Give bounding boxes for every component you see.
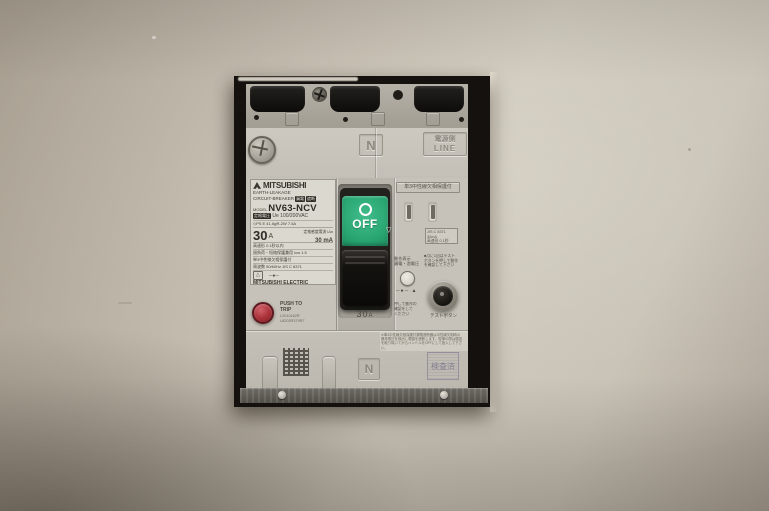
triangle-symbol-icon: △ (253, 271, 263, 280)
push-to-trip-label: PUSH TO TRIP (280, 302, 302, 313)
panel-spec-box: JIS C 8371 30mA 高速形 0.1秒 AC100/200V (425, 228, 458, 244)
seam (336, 178, 337, 330)
voltage-chip: 定格電圧 (253, 213, 271, 219)
indicator-sub: 漏電・過電圧 (394, 261, 424, 266)
terminal-tag (371, 112, 385, 126)
terminal-dot (393, 90, 403, 100)
off-circle-icon (359, 203, 372, 216)
lower-tab (322, 356, 336, 390)
line-side-jp: 電源側 (435, 135, 456, 144)
test-note-3: を確認して下さい (424, 263, 468, 268)
test-note-block: ■月に1回はテスト ボタンを押して動作 を確認して下さい (424, 254, 468, 268)
terminal-cover (414, 86, 464, 112)
seam (375, 128, 376, 178)
lower-tab (262, 356, 278, 390)
type-line-2-text: CIRCUIT-BREAKER (253, 196, 294, 201)
handle-ridge (345, 256, 385, 258)
inspection-stamp: 検査済 (427, 352, 459, 380)
freq-row: 周波数 50/60Hz JIS C 8371 (253, 264, 333, 271)
brand-name: MITSUBISHI (263, 181, 306, 190)
line-side-en: LINE (434, 144, 456, 153)
rated-current: 30 (253, 229, 267, 242)
press-note-block: 押して動作の 確認をして ください (394, 302, 426, 316)
neutral-protection-title: 単3中性線欠相保護付 (396, 182, 460, 193)
terminal-cover (330, 86, 380, 112)
push-to-trip-button[interactable] (252, 302, 274, 324)
neutral-terminal-label: N (359, 134, 383, 156)
maker-name: MITSUBISHI ELECTRIC (253, 280, 333, 285)
sensitivity-block: 定格感度電流 IΔn 30 mA (303, 227, 333, 243)
plate-screw (440, 391, 448, 399)
neutral-window (404, 202, 413, 222)
type-chip-a: 漏電 (295, 196, 305, 202)
type-line-2: CIRCUIT-BREAKER漏電遮断 (253, 196, 333, 203)
terminal-dot (254, 115, 259, 120)
panel-spec-1: JIS C 8371 30mA (427, 230, 456, 239)
circuit-symbol-icon: ─●─ (269, 273, 279, 279)
model-number: NV63-NCV (268, 203, 317, 213)
handle-ridge (345, 262, 385, 264)
symbol-row: △ ─●─ (253, 271, 333, 280)
amp-value: 30 (356, 309, 368, 319)
speed-row: 高速形 0.1秒以内 (253, 243, 333, 250)
neutral-row: 単3中性線欠相保護付 (253, 257, 333, 264)
terminal-dot (459, 117, 464, 122)
sensitivity-label: 定格感度電流 IΔn (303, 230, 333, 234)
brand-row: MITSUBISHI (253, 181, 333, 190)
serial-numbers: L2010162R L8202R379R7 (280, 314, 305, 323)
mounting-plate (240, 388, 488, 403)
terminal-tag (285, 112, 299, 126)
wall-scratch (118, 302, 132, 304)
voltage-row: 定格電圧 Ue 100/200VAC (253, 213, 333, 221)
qr-code (283, 348, 309, 376)
operation-indicator (400, 271, 415, 286)
press-note-3: ください (394, 312, 426, 317)
voltage-value: Ue 100/200VAC (272, 213, 308, 219)
breaker-handle[interactable] (342, 250, 388, 306)
terminal-dot (343, 117, 348, 122)
amp-unit: A (369, 313, 374, 319)
amp-row: 30 A 定格感度電流 IΔn 30 mA (253, 227, 333, 243)
push-to-trip-line2: TRIP (280, 308, 302, 314)
model-label: MODEL (253, 207, 267, 212)
cutout-top-bevel (238, 77, 358, 81)
model-row: MODEL NV63-NCV (253, 203, 333, 213)
serial-2: L8202R379R7 (280, 319, 305, 324)
photo-circuit-breaker: N 電源側 LINE (0, 0, 769, 511)
off-label: OFF (342, 217, 388, 231)
wall-cutout: N 電源側 LINE (234, 76, 490, 407)
rating-label: MITSUBISHI EARTH-LEAKAGE CIRCUIT-BREAKER… (250, 179, 336, 285)
terminal-tag (426, 112, 440, 126)
test-button[interactable] (428, 281, 458, 311)
amp-label: 30A (340, 309, 390, 319)
test-button-label: テストボタン (430, 313, 468, 319)
rated-current-unit: A (268, 233, 273, 240)
breaker-unit: N 電源側 LINE (246, 84, 468, 390)
terminal-cover (250, 86, 305, 112)
neutral-window (428, 202, 437, 222)
cutout-edge-highlight (490, 72, 498, 412)
caution-line-3: を取り除いてからハンドルをOFFにして投入して下さい。 (381, 341, 467, 349)
handle-arrow-icon: ▽ (386, 226, 391, 234)
plate-screw (278, 391, 286, 399)
wall-blemish (688, 148, 691, 151)
mitsubishi-logo-icon (253, 182, 261, 190)
indicator-label-block: 動作表示 漏電・過電圧 (394, 256, 424, 266)
terminal-screw (312, 87, 327, 102)
neutral-letter-bottom: N (365, 362, 374, 376)
mounting-screw (248, 136, 276, 164)
icw-row: 過負荷・短絡保護兼用 Icw 1.5 (253, 250, 333, 257)
off-indicator-window: OFF (342, 196, 388, 246)
panel-symbols-icon: ─●─ ▲ (396, 288, 417, 294)
wall-blemish (152, 36, 156, 39)
line-side-label: 電源側 LINE (423, 132, 467, 156)
caution-text: ※単3中性線欠相保護付漏電遮断器は中性線欠相時の 異常電圧を検出し電路を遮断しま… (380, 332, 468, 351)
neutral-terminal-label-bottom: N (358, 358, 380, 380)
type-chip-b: 遮断 (306, 196, 316, 202)
groove (246, 330, 468, 331)
terminal-deck (246, 84, 468, 128)
